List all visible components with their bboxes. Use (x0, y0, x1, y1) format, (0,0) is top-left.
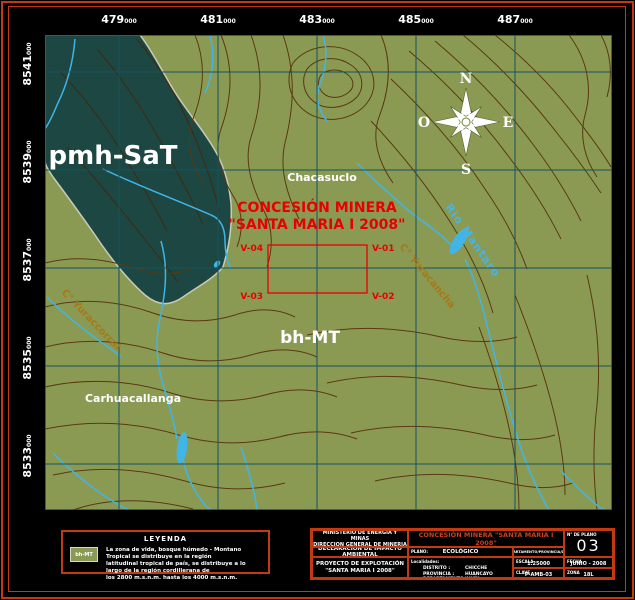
date-label: FECHA (567, 559, 582, 564)
key-label: CLAVE (516, 570, 530, 575)
district-value: CHICCHE (465, 566, 487, 571)
northing-label: 8541000 (21, 32, 35, 96)
key-cell: CLAVE P-AMB-03 (513, 568, 564, 578)
legend-line: los 2800 m.s.n.m. hasta los 4000 m.s.n.m… (106, 575, 260, 582)
legend-title: LEYENDA (63, 535, 268, 543)
compass-west-label: O (418, 115, 430, 131)
legend-line: La zona de vida, bosque húmedo - Montano… (106, 547, 260, 561)
scale-label: ESCALA (516, 559, 533, 564)
plano-cell: PLANO: ECOLÓGICO (408, 547, 513, 557)
legend-description: La zona de vida, bosque húmedo - Montano… (106, 547, 260, 582)
scale-cell: ESCALA 1:25000 (513, 557, 564, 568)
northing-label: 8537000 (21, 228, 35, 292)
topographic-map: CONCESIÓN MINERA "SANTA MARIA I 2008" V-… (45, 35, 612, 510)
vertex-label-v04: V-04 (240, 244, 263, 254)
title-block: MINISTERIO DE ENERGIA Y MINAS DIRECCION … (310, 528, 615, 580)
legend-box: LEYENDA bh-MT La zona de vida, bosque hú… (61, 530, 270, 574)
vertex-label-v03: V-03 (240, 292, 263, 302)
location-header: DEPARTAMENTO/PROVINCIA/DIST. (513, 550, 564, 554)
compass-north-label: N (460, 71, 473, 87)
legend-line: latitudinal tropical de país, se distrib… (106, 561, 260, 575)
concession-title-line2: "SANTA MARIA I 2008" (229, 217, 406, 233)
vertex-label-v02: V-02 (372, 292, 395, 302)
village-label-top: Chacasuclo (287, 171, 357, 184)
plano-value: ECOLÓGICO (443, 549, 479, 556)
zone-label: ZONA (567, 570, 580, 575)
concession-title-line1: CONCESIÓN MINERA (237, 198, 397, 216)
zone-cell: ZONA 18L (564, 568, 613, 578)
northing-label: 8539000 (21, 130, 35, 194)
easting-label: 481000 (188, 13, 248, 26)
zone-label-pmh-sat: pmh-SaT (48, 141, 177, 171)
project-line2: "SANTA MARIA I 2008" (325, 568, 395, 575)
department-value: JUNÍN (465, 577, 480, 578)
vertex-label-v01: V-01 (372, 244, 395, 254)
sheet-number: 03 (576, 536, 600, 555)
localities-list: DISTRITO :CHICCHE PROVINCIA :HUANCAYO DE… (423, 566, 493, 578)
northing-label: 8535000 (21, 326, 35, 390)
easting-label: 483000 (287, 13, 347, 26)
department-label: DEPARTAMENTO : (423, 577, 465, 578)
compass-east-label: E (503, 115, 514, 131)
legend-swatch-bh-mt: bh-MT (70, 547, 98, 562)
plano-label: PLANO: (411, 549, 428, 554)
project-cell: PROYECTO DE EXPLOTACIÓN "SANTA MARIA I 2… (312, 557, 408, 578)
northing-label: 8533000 (21, 424, 35, 488)
main-title: CONCESIÓN MINERA "SANTA MARIA I 2008" (409, 531, 563, 547)
zone-value: 18L (583, 572, 593, 578)
localities-label: Localidades: (411, 559, 439, 564)
zone-label-bh-mt: bh-MT (280, 328, 340, 348)
village-label-bottom: Carhuacallanga (85, 392, 181, 405)
ministry-line1: MINISTERIO DE ENERGIA Y MINAS (313, 530, 407, 542)
document-type: DECLARACIÓN DE IMPACTO AMBIENTAL (313, 547, 407, 557)
province-value: HUANCAYO (465, 572, 493, 577)
sheet-number-label: N° DE PLANO (567, 532, 597, 537)
main-title-cell: CONCESIÓN MINERA "SANTA MARIA I 2008" (408, 530, 564, 547)
easting-label: 479000 (89, 13, 149, 26)
easting-label: 485000 (386, 13, 446, 26)
location-header-cell: DEPARTAMENTO/PROVINCIA/DIST. (513, 547, 564, 557)
date-cell: FECHA JUNIO - 2008 (564, 557, 613, 568)
document-type-cell: DECLARACIÓN DE IMPACTO AMBIENTAL (312, 547, 408, 557)
ministry-cell: MINISTERIO DE ENERGIA Y MINAS DIRECCION … (312, 530, 408, 547)
compass-south-label: S (461, 162, 471, 178)
localities-cell: Localidades: DISTRITO :CHICCHE PROVINCIA… (408, 557, 513, 578)
sheet-number-cell: N° DE PLANO 03 (564, 530, 613, 557)
easting-label: 487000 (485, 13, 545, 26)
